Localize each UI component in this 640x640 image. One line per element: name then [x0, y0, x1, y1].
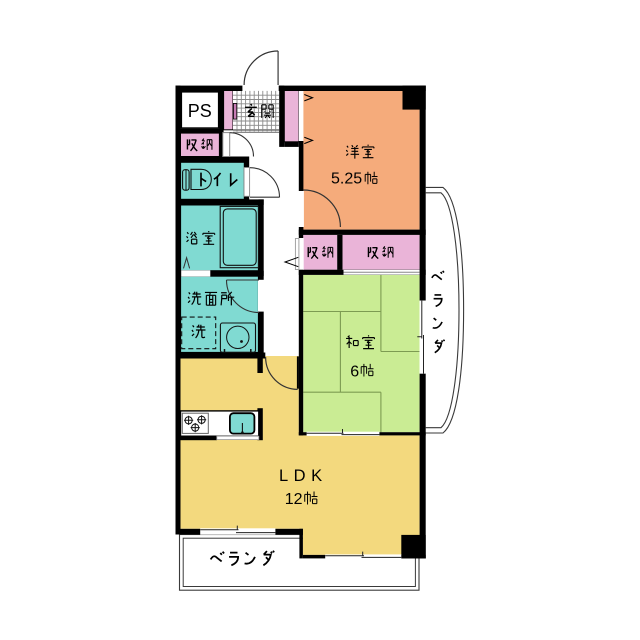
svg-text:PS: PS [188, 101, 212, 121]
svg-text:12: 12 [285, 491, 303, 508]
svg-text:5.25: 5.25 [331, 171, 362, 188]
svg-text:LDK: LDK [279, 467, 328, 485]
svg-text:6: 6 [350, 363, 359, 380]
